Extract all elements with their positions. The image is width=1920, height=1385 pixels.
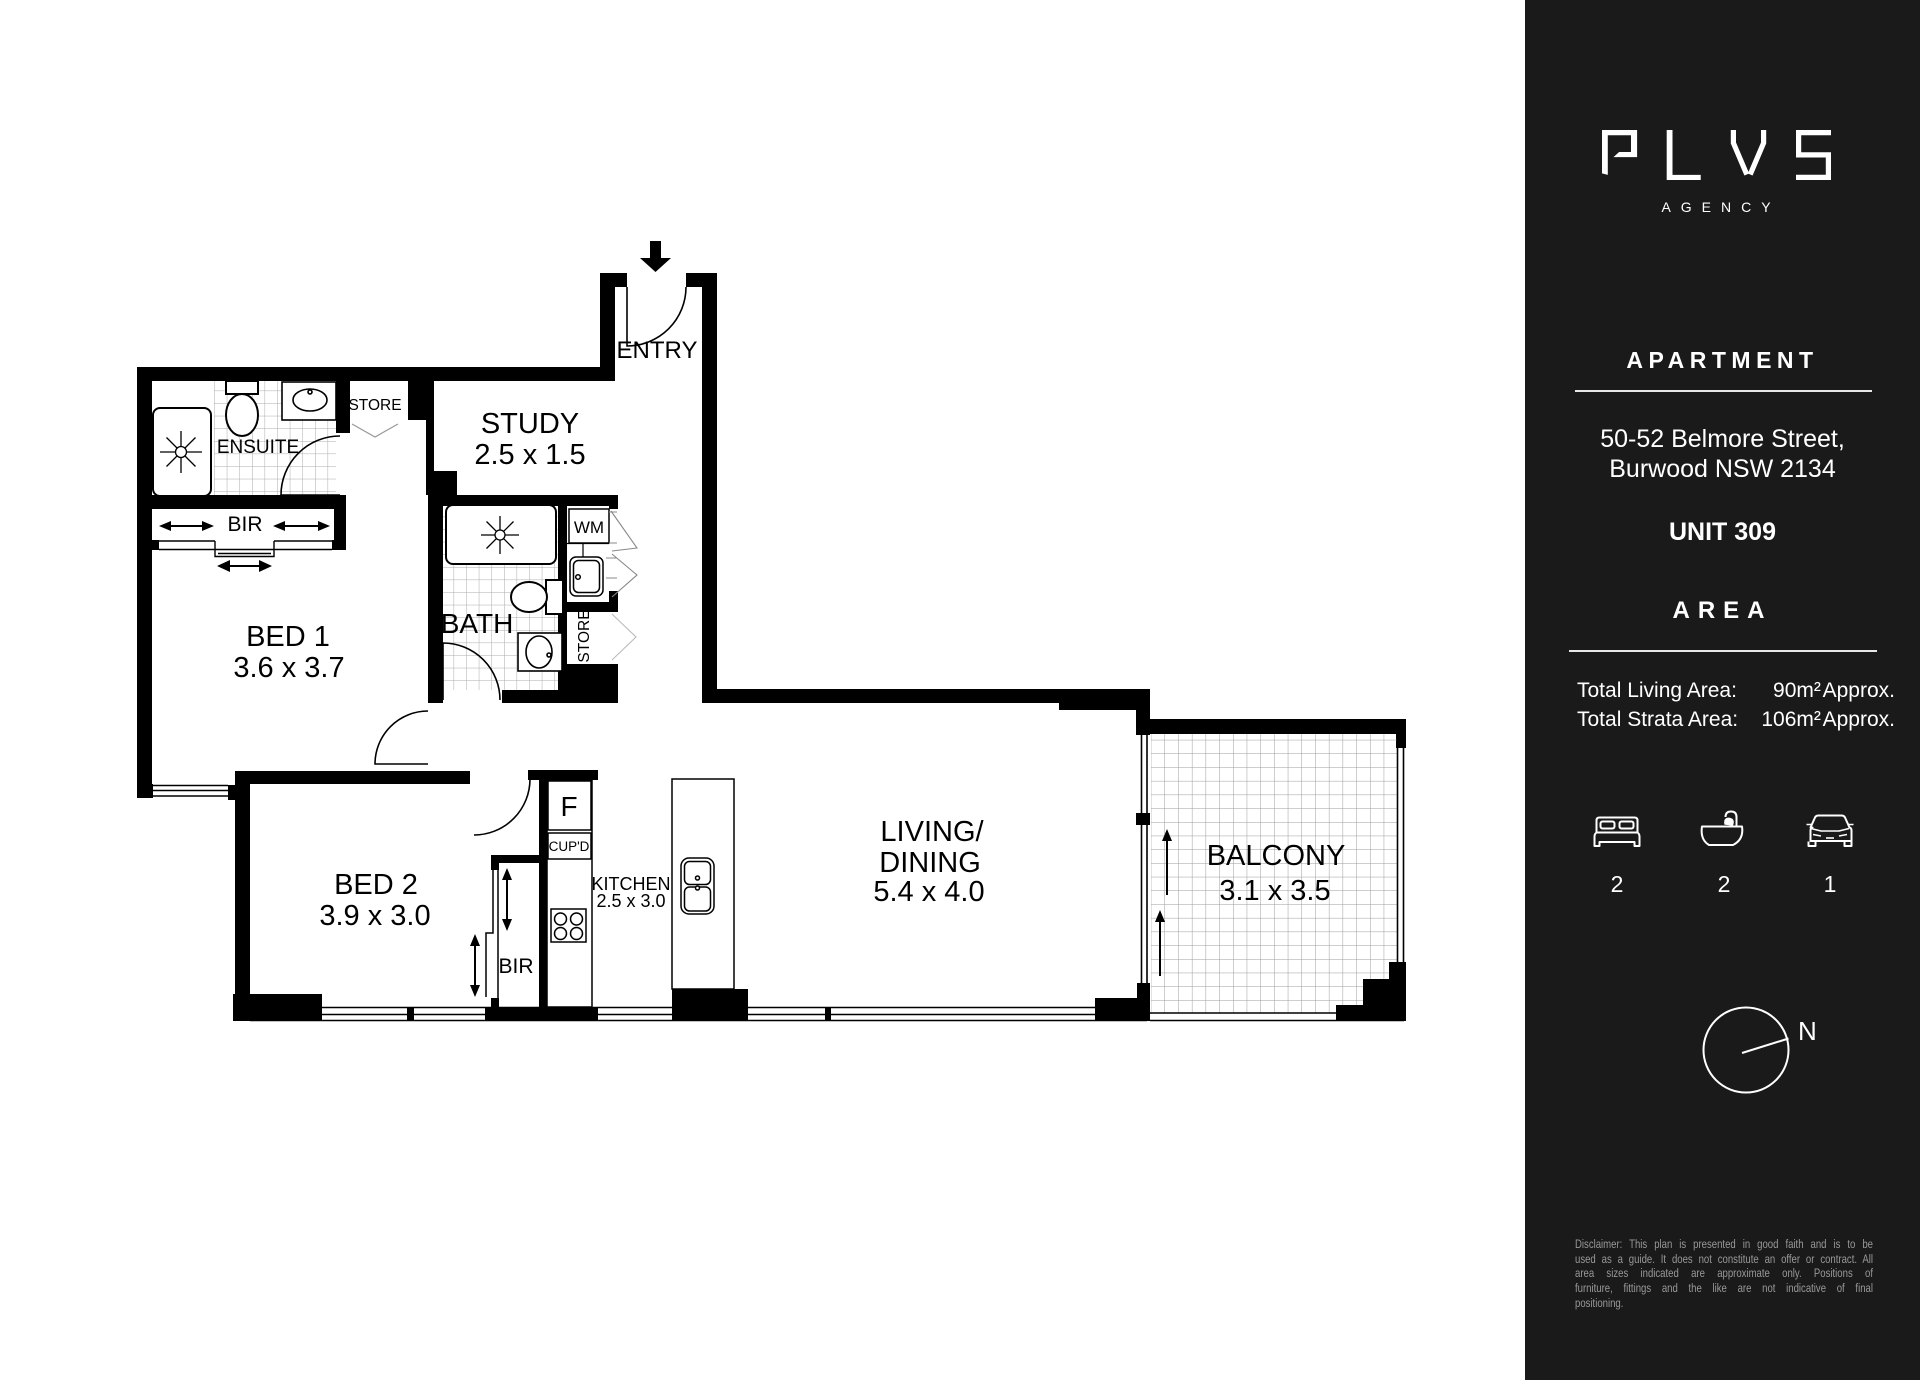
svg-text:LIVING/: LIVING/ — [880, 816, 984, 848]
svg-text:3.1 x 3.5: 3.1 x 3.5 — [1219, 875, 1330, 907]
svg-text:ENSUITE: ENSUITE — [217, 437, 299, 458]
svg-text:N: N — [1798, 1016, 1817, 1046]
svg-text:BED 2: BED 2 — [334, 869, 418, 901]
svg-text:BIR: BIR — [227, 513, 262, 536]
svg-text:BED 1: BED 1 — [246, 621, 330, 653]
svg-text:F: F — [560, 791, 577, 822]
svg-text:2.5 x 1.5: 2.5 x 1.5 — [474, 439, 585, 471]
svg-text:CUP'D: CUP'D — [549, 839, 590, 854]
svg-text:AGENCY: AGENCY — [1661, 199, 1780, 215]
svg-text:STORE: STORE — [348, 397, 401, 414]
svg-text:BALCONY: BALCONY — [1207, 840, 1346, 872]
svg-text:2.5 x 3.0: 2.5 x 3.0 — [596, 891, 665, 911]
svg-text:STORE: STORE — [576, 609, 593, 662]
svg-text:WM: WM — [574, 518, 604, 537]
svg-text:3.9 x 3.0: 3.9 x 3.0 — [319, 900, 430, 932]
svg-text:DINING: DINING — [879, 847, 981, 879]
svg-text:BATH: BATH — [441, 608, 514, 639]
svg-text:ENTRY: ENTRY — [617, 337, 698, 364]
svg-text:STUDY: STUDY — [481, 408, 579, 440]
svg-text:5.4 x 4.0: 5.4 x 4.0 — [873, 876, 984, 908]
svg-text:3.6 x 3.7: 3.6 x 3.7 — [233, 652, 344, 684]
svg-text:BIR: BIR — [498, 955, 533, 978]
